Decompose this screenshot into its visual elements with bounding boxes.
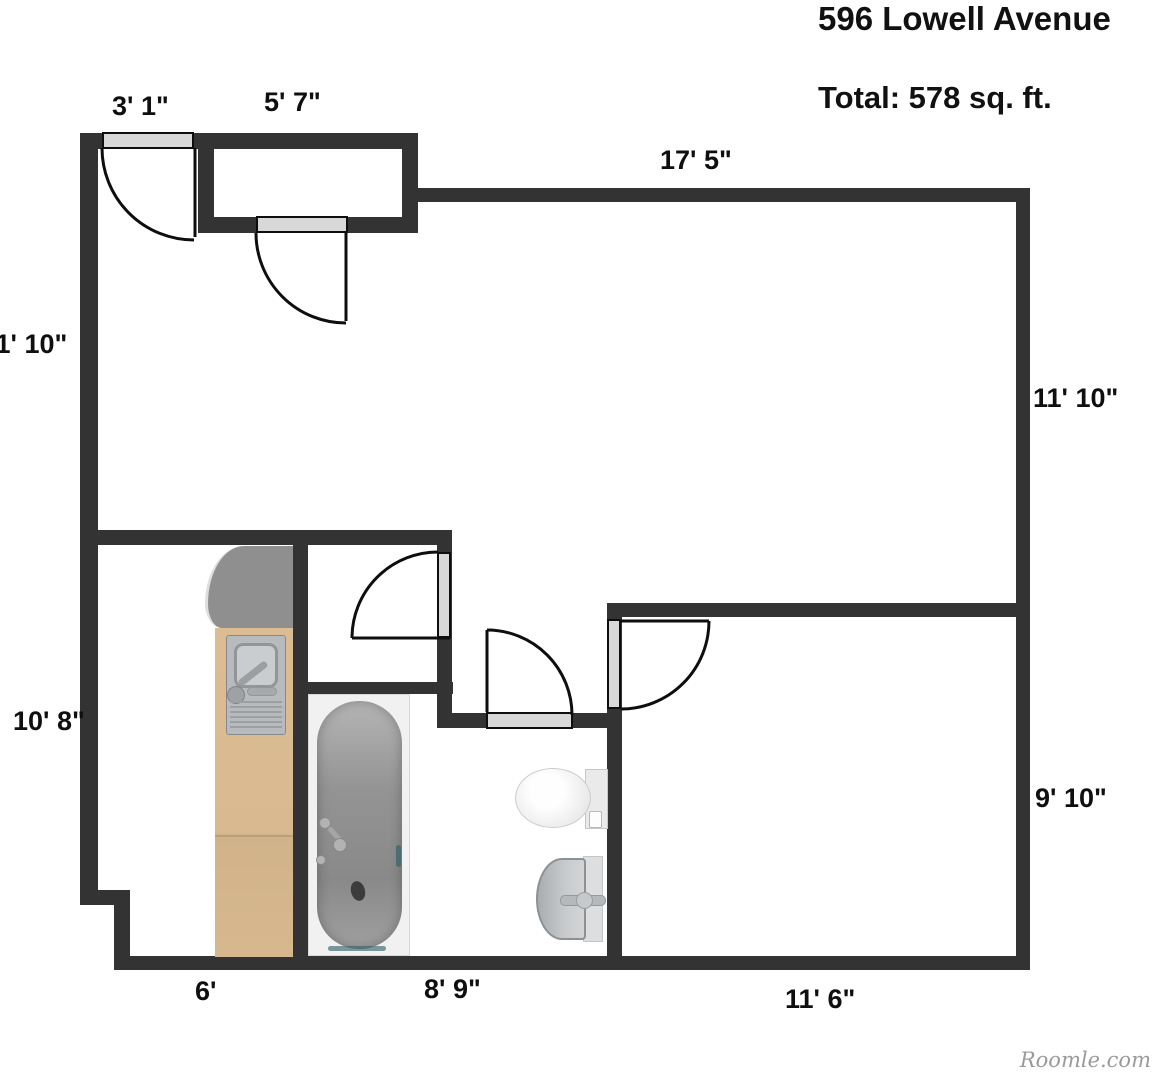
wall-bathroom-top-left [293, 682, 453, 694]
floor-plan: 596 Lowell Avenue Total: 578 sq. ft. [0, 0, 1156, 1080]
dim-living-room-height-left: 11' 10" [0, 329, 67, 360]
entry-closet-interior [214, 149, 402, 217]
wall-right [1016, 188, 1030, 970]
bedroom-door-swing-arc [621, 621, 709, 709]
wall-living-top [418, 188, 1030, 202]
bathtub-faucet-knob [316, 855, 326, 865]
total-area-label: Total: 578 sq. ft. [818, 80, 1052, 116]
counter-seam [215, 835, 293, 837]
drainboard-line [230, 726, 282, 728]
dim-entry-closet-width: 5' 7" [264, 87, 321, 118]
wall-left [80, 133, 98, 905]
dim-kitchen-width: 6' [195, 976, 216, 1007]
bathroom-door-leaf [486, 712, 573, 729]
drainboard-line [230, 701, 282, 703]
kitchen-corner-counter [205, 546, 293, 628]
dim-entry-door-width: 3' 1" [112, 91, 169, 122]
entry-closet-door-leaf [256, 216, 348, 233]
wall-bedroom-top [607, 603, 1017, 617]
bathtub-faucet-knob [333, 838, 347, 852]
toilet-flush-button [589, 811, 602, 828]
bathtub-accent [328, 946, 386, 951]
wall-kitchen-bathroom [293, 545, 308, 970]
wall-bottom [114, 956, 1030, 970]
toilet-bowl [515, 768, 591, 828]
storage-closet-door-swing-arc [352, 552, 438, 638]
drainboard-line [230, 706, 282, 708]
dim-living-room-height-right: 11' 10" [1033, 383, 1118, 414]
dim-hall-kitchen-height: 10' 8" [13, 706, 85, 737]
entry-door-swing-arc [102, 148, 194, 240]
bedroom-door-leaf [607, 619, 621, 709]
drainboard-line [230, 716, 282, 718]
entry-closet-door-swing-arc [256, 233, 346, 323]
dim-bedroom-width: 11' 6" [785, 984, 855, 1015]
drainboard-line [230, 721, 282, 723]
bathtub-accent [396, 845, 401, 867]
storage-closet-door-leaf [437, 552, 451, 638]
address-title: 596 Lowell Avenue [818, 0, 1111, 38]
basin-faucet-knob [576, 892, 593, 909]
entry-door-leaf [102, 132, 194, 149]
kitchen-soap-dish [247, 687, 277, 696]
drainboard-line [230, 711, 282, 713]
bathroom-door-swing-arc [487, 630, 572, 715]
wall-notch-horizontal [80, 890, 130, 905]
dim-bathroom-width: 8' 9" [424, 974, 481, 1005]
wall-living-kitchen-divider [80, 530, 452, 545]
dim-bedroom-height: 9' 10" [1035, 783, 1107, 814]
roomle-watermark: Roomle.com [1020, 1048, 1151, 1072]
dim-living-room-width: 17' 5" [660, 145, 732, 176]
